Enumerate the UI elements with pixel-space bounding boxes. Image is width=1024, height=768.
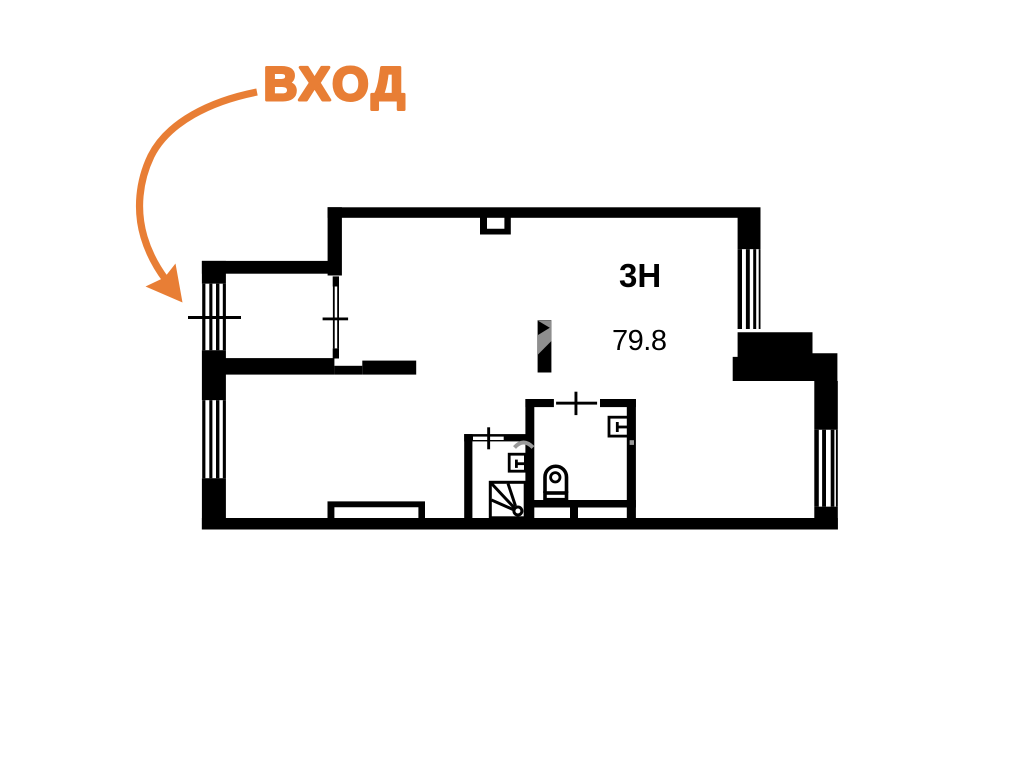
svg-text:3Н: 3Н (619, 257, 661, 294)
svg-text:ВХОД: ВХОД (264, 57, 409, 110)
svg-text:79.8: 79.8 (612, 325, 666, 357)
